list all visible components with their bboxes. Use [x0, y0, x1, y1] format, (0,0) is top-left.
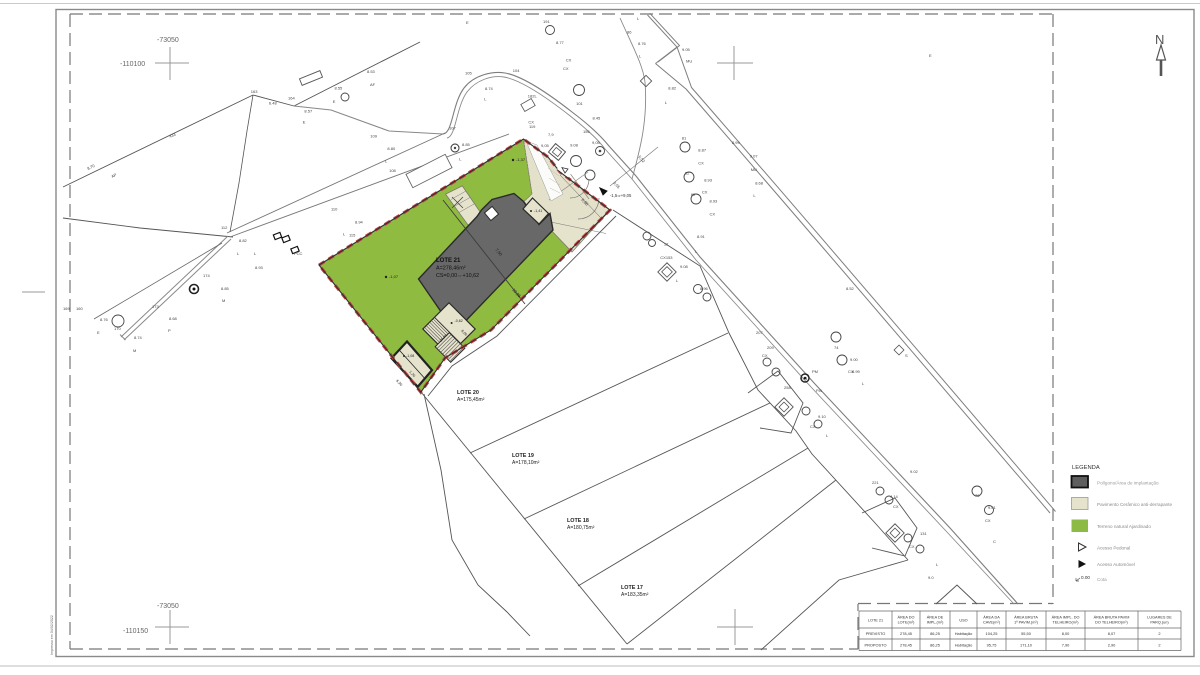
svg-text:E: E: [97, 330, 100, 335]
svg-text:8.57: 8.57: [304, 109, 313, 114]
svg-text:AF: AF: [370, 82, 376, 87]
svg-text:9.01: 9.01: [988, 505, 997, 510]
svg-text:8.93: 8.93: [255, 265, 264, 270]
svg-text:CX153: CX153: [660, 255, 673, 260]
svg-text:CX: CX: [985, 518, 991, 523]
svg-text:8.93: 8.93: [710, 198, 719, 203]
svg-text:PREVISTO: PREVISTO: [866, 631, 886, 636]
svg-text:-1,41: -1,41: [534, 209, 542, 213]
svg-text:278,45: 278,45: [900, 631, 912, 636]
svg-text:E: E: [929, 53, 932, 58]
svg-text:258: 258: [784, 385, 791, 390]
svg-text:1º PAVIM.(m²): 1º PAVIM.(m²): [1014, 621, 1039, 625]
svg-text:8.45: 8.45: [593, 116, 602, 121]
svg-text:8.82: 8.82: [668, 86, 677, 91]
svg-text:CX: CX: [909, 544, 915, 549]
svg-text:9.08: 9.08: [570, 143, 579, 148]
svg-text:171,10: 171,10: [1020, 643, 1033, 648]
svg-text:CX: CX: [710, 212, 716, 217]
svg-text:8.99: 8.99: [732, 140, 741, 145]
svg-text:86,25: 86,25: [930, 643, 940, 648]
svg-text:DO TELHEIRO(m²): DO TELHEIRO(m²): [1095, 621, 1128, 625]
svg-text:82: 82: [685, 171, 690, 176]
svg-text:-1,07: -1,07: [389, 274, 399, 279]
svg-text:156: 156: [583, 129, 590, 134]
svg-text:PROPOSTO: PROPOSTO: [865, 643, 887, 648]
svg-text:7,90: 7,90: [1062, 643, 1070, 648]
svg-text:LOTE 20: LOTE 20: [457, 390, 479, 396]
svg-text:A=180,75m²: A=180,75m²: [567, 525, 595, 531]
svg-text:8.93: 8.93: [704, 177, 713, 182]
svg-text:CX: CX: [810, 424, 816, 429]
svg-text:CX: CX: [893, 504, 899, 509]
svg-text:110: 110: [331, 207, 338, 212]
svg-text:S: S: [905, 353, 908, 358]
svg-text:ÁREA BRUTA: ÁREA BRUTA: [1014, 616, 1038, 620]
svg-text:9.07: 9.07: [750, 154, 759, 159]
svg-text:9.02: 9.02: [910, 469, 919, 474]
svg-text:9.01: 9.01: [800, 376, 809, 381]
svg-text:8.77: 8.77: [556, 40, 565, 45]
svg-text:Cota: Cota: [1097, 577, 1107, 582]
svg-text:-0,62: -0,62: [455, 319, 463, 323]
svg-text:95,75: 95,75: [987, 643, 997, 648]
svg-text:8.74: 8.74: [134, 335, 143, 340]
svg-text:PCC: PCC: [294, 251, 303, 256]
svg-text:MU: MU: [686, 59, 692, 64]
svg-text:9.05: 9.05: [682, 47, 691, 52]
svg-text:221: 221: [872, 480, 879, 485]
svg-text:2,90: 2,90: [1108, 643, 1116, 648]
svg-text:C: C: [993, 539, 996, 544]
svg-text:7,9: 7,9: [548, 132, 554, 137]
svg-text:9.00: 9.00: [850, 357, 859, 362]
svg-text:115: 115: [349, 233, 356, 238]
svg-text:PARQ.(un): PARQ.(un): [1150, 621, 1169, 625]
svg-text:8.85: 8.85: [462, 142, 471, 147]
svg-text:CX: CX: [848, 369, 854, 374]
svg-text:Terreno natural Ajardinado: Terreno natural Ajardinado: [1097, 524, 1151, 529]
svg-text:9,05: 9,05: [592, 140, 601, 145]
svg-text:CX: CX: [702, 189, 708, 194]
svg-text:A=183,35m²: A=183,35m²: [621, 592, 649, 598]
svg-text:P.B: P.B: [816, 388, 822, 393]
svg-text:9.08: 9.08: [680, 264, 689, 269]
svg-text:-1,08: -1,08: [406, 354, 414, 358]
svg-text:8.96: 8.96: [700, 286, 709, 291]
svg-text:74: 74: [834, 345, 839, 350]
svg-text:86: 86: [627, 30, 632, 35]
svg-text:104: 104: [513, 68, 520, 73]
svg-text:N: N: [1155, 32, 1164, 47]
svg-text:8.55: 8.55: [335, 86, 344, 91]
svg-text:174: 174: [203, 273, 210, 278]
svg-text:105: 105: [465, 70, 472, 75]
svg-text:278,45: 278,45: [900, 643, 912, 648]
svg-text:-1,37: -1,37: [516, 157, 526, 162]
svg-text:8.91: 8.91: [697, 234, 706, 239]
svg-text:A=178,10m²: A=178,10m²: [512, 460, 540, 466]
svg-text:-110100: -110100: [120, 61, 145, 68]
svg-text:Impresso em 04/02/2022: Impresso em 04/02/2022: [50, 615, 54, 655]
svg-text:119: 119: [529, 124, 536, 129]
svg-text:9,05: 9,05: [541, 143, 550, 148]
svg-text:160: 160: [76, 306, 83, 311]
svg-text:LOTE 21: LOTE 21: [436, 258, 461, 264]
svg-text:170: 170: [114, 326, 121, 331]
svg-text:169: 169: [63, 306, 70, 311]
svg-text:TELHEIRO(m²): TELHEIRO(m²): [1053, 621, 1080, 625]
svg-text:9.0: 9.0: [928, 575, 934, 580]
svg-text:107: 107: [449, 126, 456, 131]
svg-text:191: 191: [543, 19, 550, 24]
svg-text:ÁREA BRUTA PAVIM: ÁREA BRUTA PAVIM: [1094, 616, 1130, 620]
svg-text:207: 207: [756, 330, 763, 335]
svg-text:IMPL.(m²): IMPL.(m²): [927, 621, 945, 625]
svg-text:M: M: [133, 348, 136, 353]
svg-text:8.76: 8.76: [100, 317, 109, 322]
svg-text:Habitação: Habitação: [955, 631, 973, 636]
svg-text:CAVE(m²): CAVE(m²): [983, 621, 1001, 625]
svg-text:104,25: 104,25: [986, 631, 998, 636]
svg-text:55,50: 55,50: [1021, 631, 1032, 636]
svg-text:E: E: [466, 20, 469, 25]
svg-text:E: E: [333, 99, 336, 104]
svg-text:9.10: 9.10: [818, 414, 827, 419]
svg-text:-1,5⇒+9,05: -1,5⇒+9,05: [610, 193, 632, 198]
svg-text:PM: PM: [812, 369, 818, 374]
svg-text:8.80: 8.80: [387, 146, 396, 151]
svg-text:8,07: 8,07: [1108, 631, 1116, 636]
svg-text:LOTE 21: LOTE 21: [868, 619, 883, 623]
svg-text:-110150: -110150: [123, 628, 148, 635]
svg-text:CX: CX: [566, 58, 572, 63]
svg-text:-73050: -73050: [157, 37, 179, 44]
svg-text:164: 164: [288, 96, 295, 101]
svg-text:6.48: 6.48: [269, 101, 278, 106]
svg-text:8.82: 8.82: [239, 238, 248, 243]
svg-text:Polígono/Área de implantação: Polígono/Área de implantação: [1097, 480, 1159, 486]
svg-text:0.00: 0.00: [1081, 575, 1090, 580]
svg-text:8.68: 8.68: [755, 180, 764, 185]
svg-text:LOTE(m²): LOTE(m²): [898, 621, 916, 625]
svg-text:USO: USO: [959, 619, 967, 623]
svg-text:A=175,45m²: A=175,45m²: [457, 397, 485, 403]
svg-text:8.68: 8.68: [169, 316, 178, 321]
svg-text:LOTE 19: LOTE 19: [512, 453, 534, 459]
svg-text:CX: CX: [762, 353, 768, 358]
svg-text:E: E: [303, 119, 306, 124]
svg-text:163: 163: [251, 89, 258, 94]
svg-text:CS=0,00⇔+10,62: CS=0,00⇔+10,62: [436, 273, 479, 279]
svg-text:70: 70: [975, 493, 980, 498]
svg-text:CX: CX: [563, 66, 569, 71]
svg-text:LOTE 18: LOTE 18: [567, 518, 589, 524]
svg-text:Habitação: Habitação: [955, 643, 973, 648]
svg-text:182L: 182L: [528, 93, 538, 98]
svg-text:8,00: 8,00: [1062, 631, 1070, 636]
svg-text:173: 173: [152, 304, 159, 309]
svg-text:P: P: [168, 328, 171, 333]
svg-text:Acesso Pedonal: Acesso Pedonal: [1097, 546, 1130, 551]
svg-text:Pavimento Cerâmico anti-derrap: Pavimento Cerâmico anti-derrapante: [1097, 502, 1173, 507]
svg-text:M: M: [222, 298, 225, 303]
svg-text:109: 109: [370, 133, 377, 138]
svg-text:8.87: 8.87: [698, 147, 707, 152]
svg-text:101: 101: [576, 101, 583, 106]
svg-text:2: 2: [1158, 643, 1160, 648]
svg-text:8.53: 8.53: [367, 69, 376, 74]
svg-text:8.76: 8.76: [638, 41, 647, 46]
svg-text:8.74: 8.74: [485, 86, 494, 91]
svg-text:108: 108: [389, 168, 396, 173]
svg-text:MU: MU: [751, 167, 757, 172]
svg-text:Acesso Automóvel: Acesso Automóvel: [1097, 562, 1135, 567]
svg-text:8.85: 8.85: [221, 286, 230, 291]
svg-text:LOTE 17: LOTE 17: [621, 585, 643, 591]
svg-text:ÁREA DO: ÁREA DO: [898, 616, 915, 620]
svg-text:4.14: 4.14: [890, 494, 899, 499]
svg-text:ÁREA DE: ÁREA DE: [927, 616, 944, 620]
svg-text:-73050: -73050: [157, 603, 179, 610]
svg-text:12: 12: [664, 241, 669, 246]
svg-text:ÁREA DA: ÁREA DA: [983, 616, 1000, 620]
svg-text:86,25: 86,25: [930, 631, 940, 636]
svg-text:A=278,46m²: A=278,46m²: [436, 266, 466, 272]
svg-text:209: 209: [767, 345, 774, 350]
svg-text:8.52: 8.52: [846, 286, 855, 291]
svg-text:2: 2: [1158, 631, 1160, 636]
svg-text:LUGARES DE: LUGARES DE: [1147, 616, 1172, 620]
svg-text:8.94: 8.94: [355, 220, 364, 225]
svg-text:81: 81: [682, 136, 687, 141]
svg-text:ÁREA IMPL. DO: ÁREA IMPL. DO: [1052, 616, 1080, 620]
svg-text:LEGENDA: LEGENDA: [1072, 465, 1100, 471]
svg-text:CX: CX: [698, 161, 704, 166]
svg-text:112: 112: [221, 225, 228, 230]
svg-text:80: 80: [691, 192, 696, 197]
svg-text:131: 131: [920, 531, 927, 536]
